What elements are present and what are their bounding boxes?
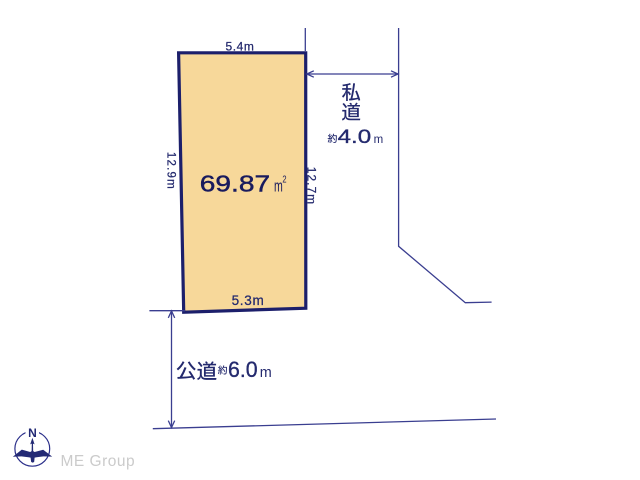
svg-text:69.87: 69.87 bbox=[200, 171, 270, 197]
svg-text:m: m bbox=[260, 365, 272, 381]
svg-text:12.7m: 12.7m bbox=[305, 167, 319, 205]
svg-text:5.4m: 5.4m bbox=[225, 40, 254, 54]
svg-text:m: m bbox=[374, 134, 384, 146]
svg-text:6.0: 6.0 bbox=[228, 357, 258, 382]
svg-text:12.9m: 12.9m bbox=[164, 152, 176, 190]
svg-text:2: 2 bbox=[282, 174, 287, 185]
svg-text:4.0: 4.0 bbox=[338, 126, 372, 148]
svg-text:5.3m: 5.3m bbox=[232, 293, 265, 308]
svg-text:ME Group: ME Group bbox=[61, 453, 136, 470]
